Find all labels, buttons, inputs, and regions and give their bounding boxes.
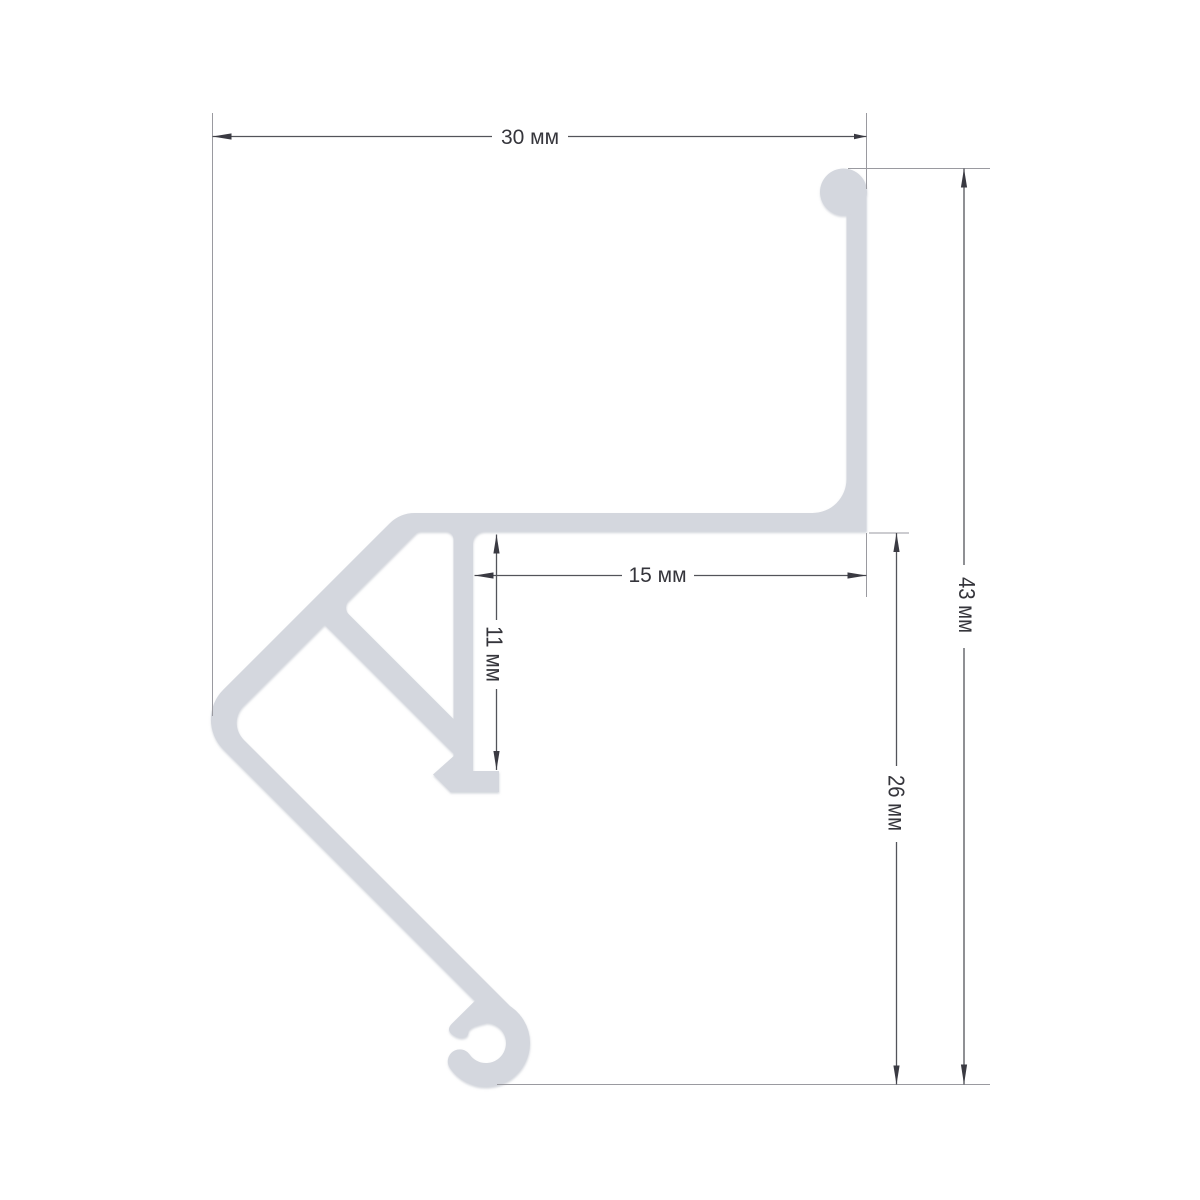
svg-text:30 мм: 30 мм [501,126,559,149]
svg-text:26 мм: 26 мм [884,775,910,831]
svg-text:43 мм: 43 мм [954,577,980,633]
svg-text:11 мм: 11 мм [482,626,508,682]
svg-text:15 мм: 15 мм [628,564,686,587]
